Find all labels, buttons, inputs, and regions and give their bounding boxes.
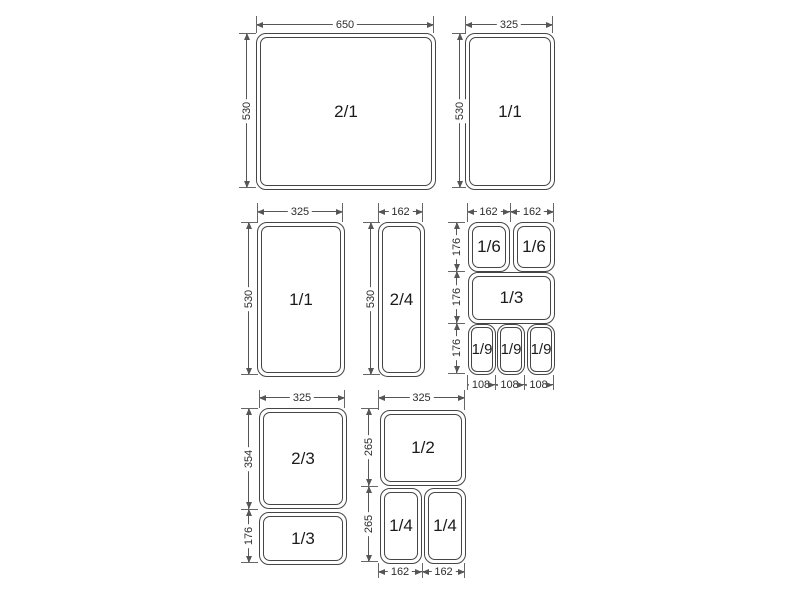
extension-line [361,561,378,562]
extension-line [524,375,525,390]
pan-2-4: 2/4 [378,222,425,377]
dim-height-530-a: 530 [246,33,247,188]
dim-height-265-a: 265 [368,408,369,486]
pan-1-3-b-label: 1/3 [291,529,315,549]
dim-height-530-c-value: 530 [243,286,255,310]
pan-2-4-inner-rim: 2/4 [382,226,421,373]
dim-width-325-c-value: 325 [290,392,314,404]
dim-width-325-a: 325 [465,24,553,25]
dim-width-108-c: 108 [524,384,553,385]
extension-line [448,271,465,272]
extension-line [553,375,554,390]
extension-line [257,203,258,222]
dim-height-530-b-value: 530 [454,98,466,122]
pan-1-9-b-inner-rim: 1/9 [500,327,522,372]
pan-1-4-b-inner-rim: 1/4 [428,492,462,560]
pan-1-9-a-inner-rim: 1/9 [471,327,493,372]
extension-line [239,33,256,34]
pan-2-3-inner-rim: 2/3 [263,412,343,505]
dim-width-650: 650 [256,24,434,25]
pan-1-6-a: 1/6 [468,222,510,272]
dim-height-530-b: 530 [459,33,460,188]
pan-1-6-a-label: 1/6 [477,237,501,257]
extension-line [448,222,465,223]
dim-width-108-c-value: 108 [526,379,550,391]
pan-1-1-middle-inner-rim: 1/1 [261,226,341,373]
dim-width-162-e: 162 [422,571,465,572]
dim-width-108-a-value: 108 [469,379,493,391]
pan-1-9-c: 1/9 [527,324,555,375]
pan-2-1-inner-rim: 2/1 [260,37,432,186]
dim-width-162-e-value: 162 [431,566,455,578]
extension-line [241,562,258,563]
dim-width-325-d: 325 [378,397,465,398]
pan-1-9-b-label: 1/9 [501,341,522,358]
dim-height-530-d-value: 530 [365,286,377,310]
extension-line [467,203,468,222]
pan-1-9-c-label: 1/9 [531,341,552,358]
extension-line [448,323,465,324]
dim-width-162-d-value: 162 [388,566,412,578]
extension-line [552,16,553,33]
pan-1-4-b-label: 1/4 [433,516,457,536]
extension-line [342,203,343,222]
dim-height-265-b-value: 265 [363,512,375,536]
extension-line [241,509,258,510]
dim-width-162-c-value: 162 [520,206,544,218]
extension-line [361,486,378,487]
extension-line [378,203,379,222]
extension-line [241,222,258,223]
extension-line [241,374,258,375]
dim-height-176-d: 176 [248,509,249,563]
pan-2-4-label: 2/4 [390,290,414,310]
pan-1-2-label: 1/2 [411,438,435,458]
pan-1-2: 1/2 [380,410,466,486]
dim-width-325-d-value: 325 [409,392,433,404]
dim-width-325-c: 325 [259,397,345,398]
pan-1-9-a-label: 1/9 [472,341,493,358]
extension-line [464,390,465,410]
dim-width-162-c: 162 [510,211,554,212]
pan-1-3-b: 1/3 [259,512,347,565]
dim-height-530-c: 530 [248,222,249,375]
pan-1-4-a-label: 1/4 [389,516,413,536]
extension-line [344,390,345,408]
pan-1-6-b-label: 1/6 [522,237,546,257]
dim-width-108-b-value: 108 [497,379,521,391]
dim-height-176-d-value: 176 [243,524,255,548]
extension-line [464,563,465,578]
extension-line [553,203,554,222]
pan-1-6-b: 1/6 [513,222,555,272]
pan-1-4-a-inner-rim: 1/4 [384,492,418,560]
gastronorm-pan-size-diagram: 2/1 650 530 1/1 325 530 1/1 325 530 [0,0,800,600]
dim-width-162-d: 162 [378,571,422,572]
pan-1-3-a-label: 1/3 [500,288,524,308]
extension-line [465,16,466,33]
dim-width-325-b: 325 [257,211,343,212]
dim-height-265-b: 265 [368,486,369,562]
dim-width-108-a: 108 [467,384,495,385]
dim-height-530-d: 530 [370,222,371,375]
dim-height-176-c: 176 [456,323,457,373]
pan-1-1-middle: 1/1 [257,222,345,377]
pan-1-3-b-inner-rim: 1/3 [263,516,343,561]
extension-line [378,563,379,578]
extension-line [256,16,257,33]
pan-1-1-upper-inner-rim: 1/1 [469,37,551,186]
extension-line [452,187,466,188]
dim-height-265-a-value: 265 [363,435,375,459]
dim-width-162-b: 162 [467,211,510,212]
extension-line [259,390,260,408]
pan-1-6-a-inner-rim: 1/6 [472,226,506,268]
extension-line [363,374,380,375]
dim-height-530-a-value: 530 [241,98,253,122]
extension-line [422,563,423,578]
pan-2-1: 2/1 [256,33,436,190]
pan-1-3-a: 1/3 [468,272,555,324]
pan-1-1-upper: 1/1 [465,33,555,190]
dim-width-162-a-value: 162 [388,206,412,218]
dim-height-176-a: 176 [456,222,457,271]
dim-width-325-b-value: 325 [288,206,312,218]
extension-line [361,408,378,409]
dim-width-325-a-value: 325 [497,19,521,31]
extension-line [422,203,423,222]
extension-line [241,408,258,409]
dim-height-176-c-value: 176 [451,336,463,360]
pan-1-6-b-inner-rim: 1/6 [517,226,551,268]
extension-line [378,390,379,410]
pan-1-4-a: 1/4 [380,488,422,564]
dim-width-650-value: 650 [333,19,357,31]
dim-width-162-a: 162 [378,211,423,212]
extension-line [363,222,380,223]
dim-width-162-b-value: 162 [476,206,500,218]
extension-line [452,33,466,34]
pan-1-1-upper-label: 1/1 [498,102,522,122]
pan-1-9-a: 1/9 [468,324,496,375]
pan-1-3-a-inner-rim: 1/3 [472,276,551,320]
extension-line [239,187,256,188]
dim-height-176-a-value: 176 [451,234,463,258]
dim-height-176-b-value: 176 [451,285,463,309]
extension-line [433,16,434,33]
dim-width-108-b: 108 [495,384,524,385]
dim-height-176-b: 176 [456,271,457,323]
extension-line [495,375,496,390]
dim-height-354-value: 354 [243,446,255,470]
pan-2-1-label: 2/1 [334,102,358,122]
pan-1-9-b: 1/9 [497,324,525,375]
extension-line [510,203,511,222]
extension-line [448,373,465,374]
pan-1-1-middle-label: 1/1 [289,290,313,310]
extension-line [467,375,468,390]
pan-2-3: 2/3 [259,408,347,509]
pan-1-2-inner-rim: 1/2 [384,414,462,482]
pan-1-9-c-inner-rim: 1/9 [530,327,552,372]
pan-2-3-label: 2/3 [291,449,315,469]
pan-1-4-b: 1/4 [424,488,466,564]
dim-height-354: 354 [248,408,249,509]
